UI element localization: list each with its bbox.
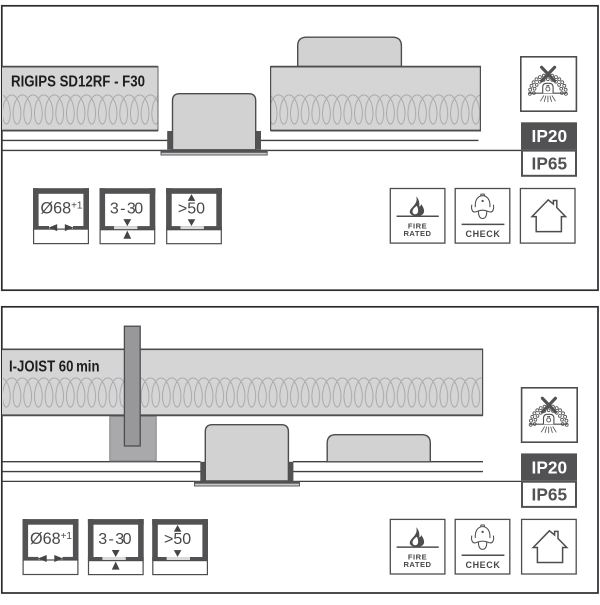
svg-text:CHECK: CHECK bbox=[465, 229, 500, 239]
svg-text:I-JOIST 60 min: I-JOIST 60 min bbox=[9, 359, 100, 376]
svg-text:IP65: IP65 bbox=[532, 154, 568, 174]
svg-text:RIGIPS SD12RF - F30: RIGIPS SD12RF - F30 bbox=[11, 74, 145, 91]
svg-text:3 - 30: 3 - 30 bbox=[110, 200, 143, 217]
svg-text:>50: >50 bbox=[178, 200, 205, 217]
svg-text:IP20: IP20 bbox=[532, 457, 568, 477]
svg-text:RATED: RATED bbox=[403, 229, 431, 238]
svg-text:IP65: IP65 bbox=[532, 485, 568, 505]
svg-text:IP20: IP20 bbox=[532, 126, 568, 146]
